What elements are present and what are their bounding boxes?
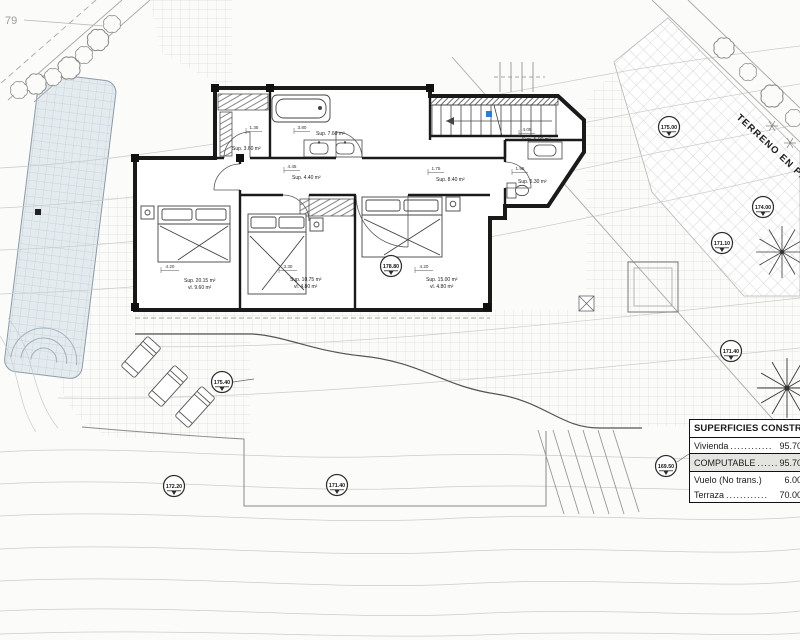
elevation-marker: 171.10 — [712, 233, 733, 254]
bedroom1-vl-label: vl. 9.60 m² — [188, 285, 212, 291]
row-label: COMPUTABLE — [694, 458, 755, 468]
bath-guest-area-label: Sup. 5.30 m² — [518, 179, 547, 185]
elevation-marker: 171.40 — [327, 475, 348, 496]
table-row: Terraza ............ 70.00 — [690, 487, 800, 502]
elevation-marker: 178.80 — [381, 256, 402, 277]
row-dots: ....... — [757, 458, 777, 468]
dim-dressing-a: 1.35 — [250, 125, 259, 130]
svg-text:172.20: 172.20 — [166, 484, 182, 490]
elevation-marker: 169.50 — [656, 456, 677, 477]
svg-text:169.50: 169.50 — [658, 464, 674, 470]
elevation-marker: 171.40 — [721, 341, 742, 362]
terrace-steps — [538, 430, 639, 514]
corridor-area-label: Sup. 8.40 m² — [436, 177, 465, 183]
dressing-area-label: Sup. 3.60 m² — [232, 146, 261, 152]
parcel-leader-line — [24, 20, 104, 26]
row-dots: ............ — [730, 441, 777, 451]
drain-symbol — [579, 296, 594, 311]
hall-area-label: Sup. 4.40 m² — [292, 175, 321, 181]
elevation-marker: 174.00 — [753, 197, 774, 218]
row-label: Terraza — [694, 490, 724, 500]
svg-text:171.40: 171.40 — [329, 483, 345, 489]
svg-text:171.10: 171.10 — [714, 241, 730, 247]
elevation-marker: 175.40 — [212, 372, 233, 393]
dim-bedroom1: 4.20 — [166, 264, 175, 269]
row-label: Vivienda — [694, 441, 728, 451]
areas-table-title: SUPERFICIES CONSTRUIDA — [690, 420, 800, 438]
row-dots: ............ — [726, 490, 777, 500]
dim-bedroom3: 4.20 — [420, 264, 429, 269]
svg-text:171.40: 171.40 — [723, 349, 739, 355]
dim-bedroom2: 3.30 — [284, 264, 293, 269]
table-row: Vuelo (No trans.) 6.00 — [690, 472, 800, 487]
bath-main-area-label: Sup. 7.60 m² — [316, 131, 345, 137]
stair-wall-hatch — [430, 97, 558, 105]
row-value: 95.70 — [779, 458, 800, 468]
stairs-area-label: Sup. 5.00 m² — [522, 137, 551, 143]
svg-text:175.00: 175.00 — [661, 125, 677, 131]
bedroom3-area-label: Sup. 15.00 m² — [426, 277, 458, 283]
row-value: 70.00 — [779, 490, 800, 500]
parcel-number: 79 — [5, 15, 17, 27]
bedroom1-area-label: Sup. 20.15 m² — [184, 278, 216, 284]
bathtub-icon — [272, 95, 330, 122]
double-sink-icon — [304, 140, 362, 157]
elevation-marker: 172.20 — [164, 476, 185, 497]
nightstand — [446, 197, 460, 211]
bedroom2-area-label: Sup. 10.75 m² — [290, 277, 322, 283]
nightstand — [141, 206, 154, 219]
dim-stairs: 4.05 — [523, 127, 532, 132]
dim-corridor: 1.75 — [432, 166, 441, 171]
dim-dressing-b: 3.80 — [298, 125, 307, 130]
sink-icon — [528, 142, 562, 159]
dim-hall: 4.45 — [288, 164, 297, 169]
light-post — [35, 209, 41, 215]
svg-text:175.40: 175.40 — [214, 380, 230, 386]
dim-bath-guest: 1.95 — [516, 166, 525, 171]
svg-text:174.00: 174.00 — [755, 205, 771, 211]
floor-plan-canvas: Sup. 3.60 m² Sup. 7.60 m² Sup. 4.40 m² S… — [0, 0, 800, 640]
bedroom3-vl-label: vl. 4.80 m² — [430, 284, 454, 290]
table-row: Vivienda ............ 95.70 — [690, 438, 800, 453]
svg-text:178.80: 178.80 — [383, 264, 399, 270]
row-value: 6.00 — [784, 475, 800, 485]
row-value: 95.70 — [779, 441, 800, 451]
row-label: Vuelo (No trans.) — [694, 475, 762, 485]
bedroom2-vl-label: vl. 4.80 m² — [294, 284, 318, 290]
stair-reference-marker — [486, 111, 492, 117]
elevation-marker: 175.00 — [659, 117, 680, 138]
nightstand — [310, 218, 323, 231]
areas-table: SUPERFICIES CONSTRUIDA Vivienda ........… — [689, 419, 800, 503]
table-row-computable: COMPUTABLE ....... 95.70 — [690, 453, 800, 472]
